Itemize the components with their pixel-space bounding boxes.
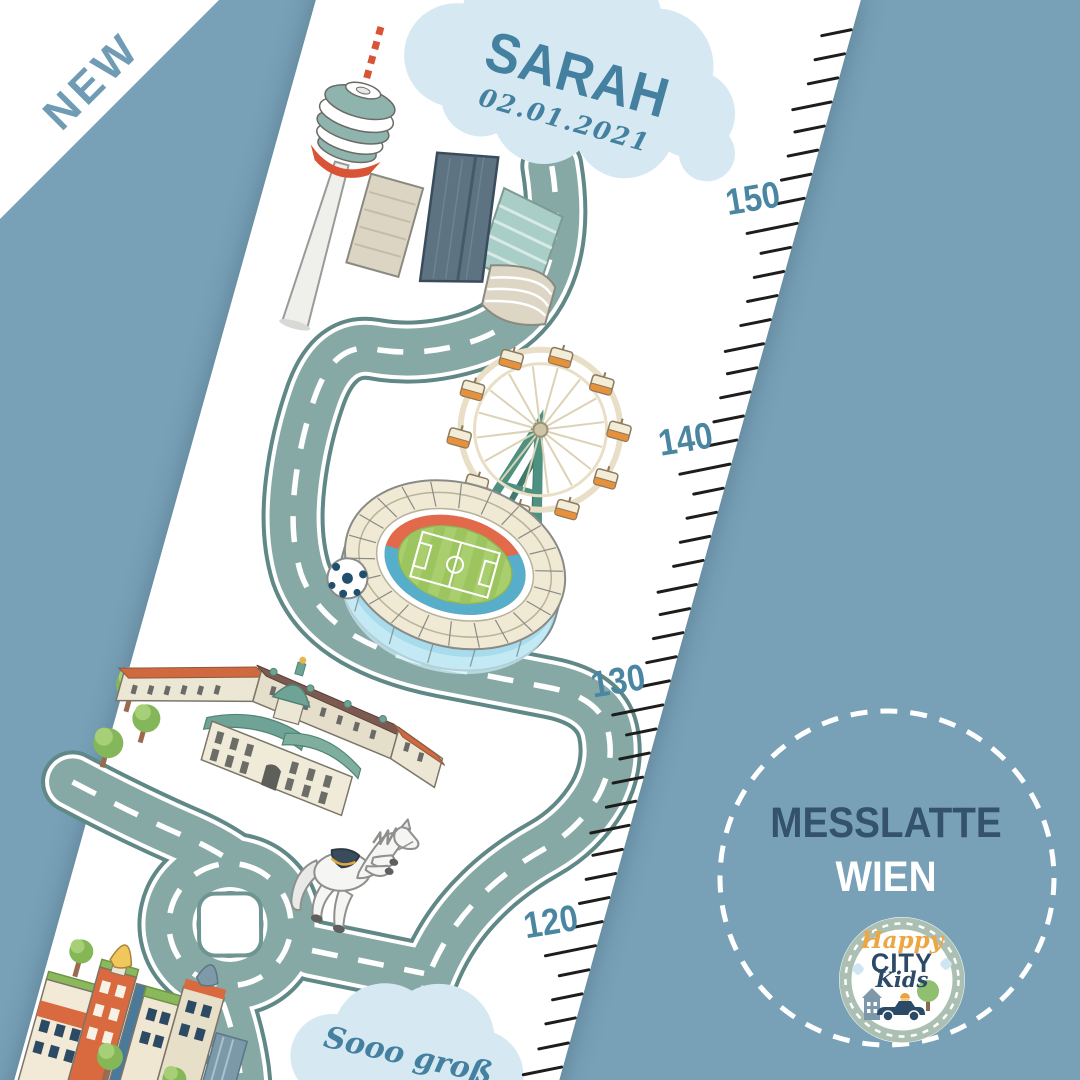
panel-title-line2: WIEN	[724, 853, 1048, 901]
side-panel-art	[0, 0, 1080, 1080]
panel-title-line1: MESSLATTE	[724, 799, 1048, 847]
product-image: SARAH 02.01.2021 Sooo groß 150140130120 …	[0, 0, 1080, 1080]
logo-word-kids: Kids	[842, 967, 962, 992]
